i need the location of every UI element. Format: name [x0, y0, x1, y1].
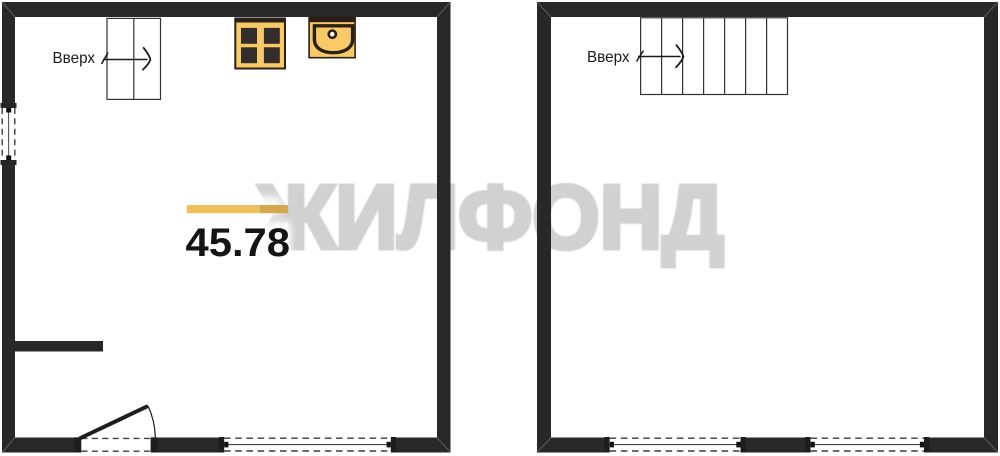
svg-text:45.78: 45.78: [186, 221, 291, 265]
svg-text:ЖИЛФОНД: ЖИЛФОНД: [256, 168, 724, 268]
svg-text:Вверх: Вверх: [587, 49, 630, 66]
svg-text:Вверх: Вверх: [53, 50, 96, 67]
